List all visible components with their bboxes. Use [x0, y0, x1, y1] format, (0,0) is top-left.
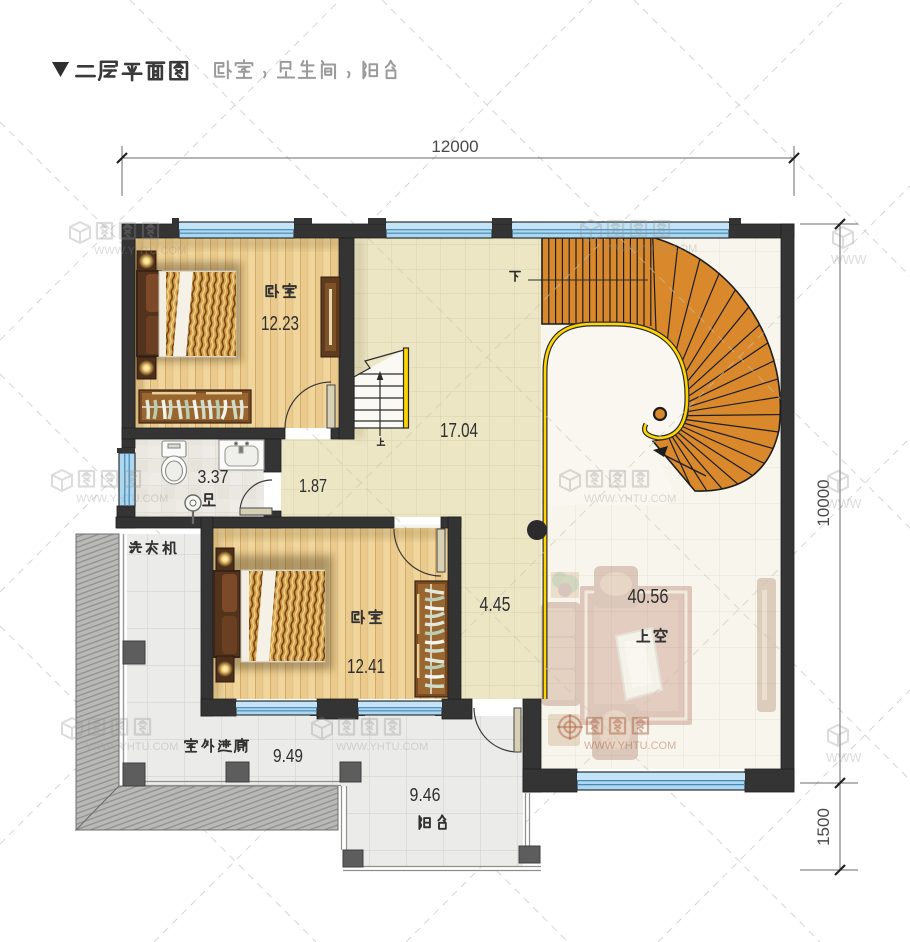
- svg-text:WWW.YHTU.COM: WWW.YHTU.COM: [76, 493, 168, 505]
- svg-text:12000: 12000: [431, 137, 478, 156]
- svg-text:WWW.YHTU.COM: WWW.YHTU.COM: [94, 245, 186, 257]
- svg-text:WWW: WWW: [826, 751, 862, 765]
- svg-text:WWW.YHTU.COM: WWW.YHTU.COM: [86, 741, 178, 753]
- svg-text:12.41: 12.41: [347, 656, 385, 678]
- svg-text:WWW.YHTU.COM: WWW.YHTU.COM: [336, 741, 428, 753]
- svg-text:17.04: 17.04: [440, 420, 478, 442]
- svg-text:WWW.YHTU.COM: WWW.YHTU.COM: [584, 740, 676, 752]
- svg-text:1500: 1500: [814, 808, 833, 846]
- svg-text:WWW: WWW: [831, 253, 867, 267]
- svg-text:9.49: 9.49: [273, 746, 303, 766]
- svg-text:1.87: 1.87: [299, 476, 327, 496]
- svg-text:WWW: WWW: [826, 497, 862, 511]
- svg-text:WWW.YHTU.COM: WWW.YHTU.COM: [584, 493, 676, 505]
- svg-text:12.23: 12.23: [261, 313, 299, 335]
- svg-text:9.46: 9.46: [410, 785, 441, 805]
- svg-text:40.56: 40.56: [628, 586, 669, 608]
- svg-text:3.37: 3.37: [198, 467, 229, 487]
- svg-text:4.45: 4.45: [480, 594, 511, 616]
- svg-text:WWW.YHTU.COM: WWW.YHTU.COM: [605, 243, 697, 255]
